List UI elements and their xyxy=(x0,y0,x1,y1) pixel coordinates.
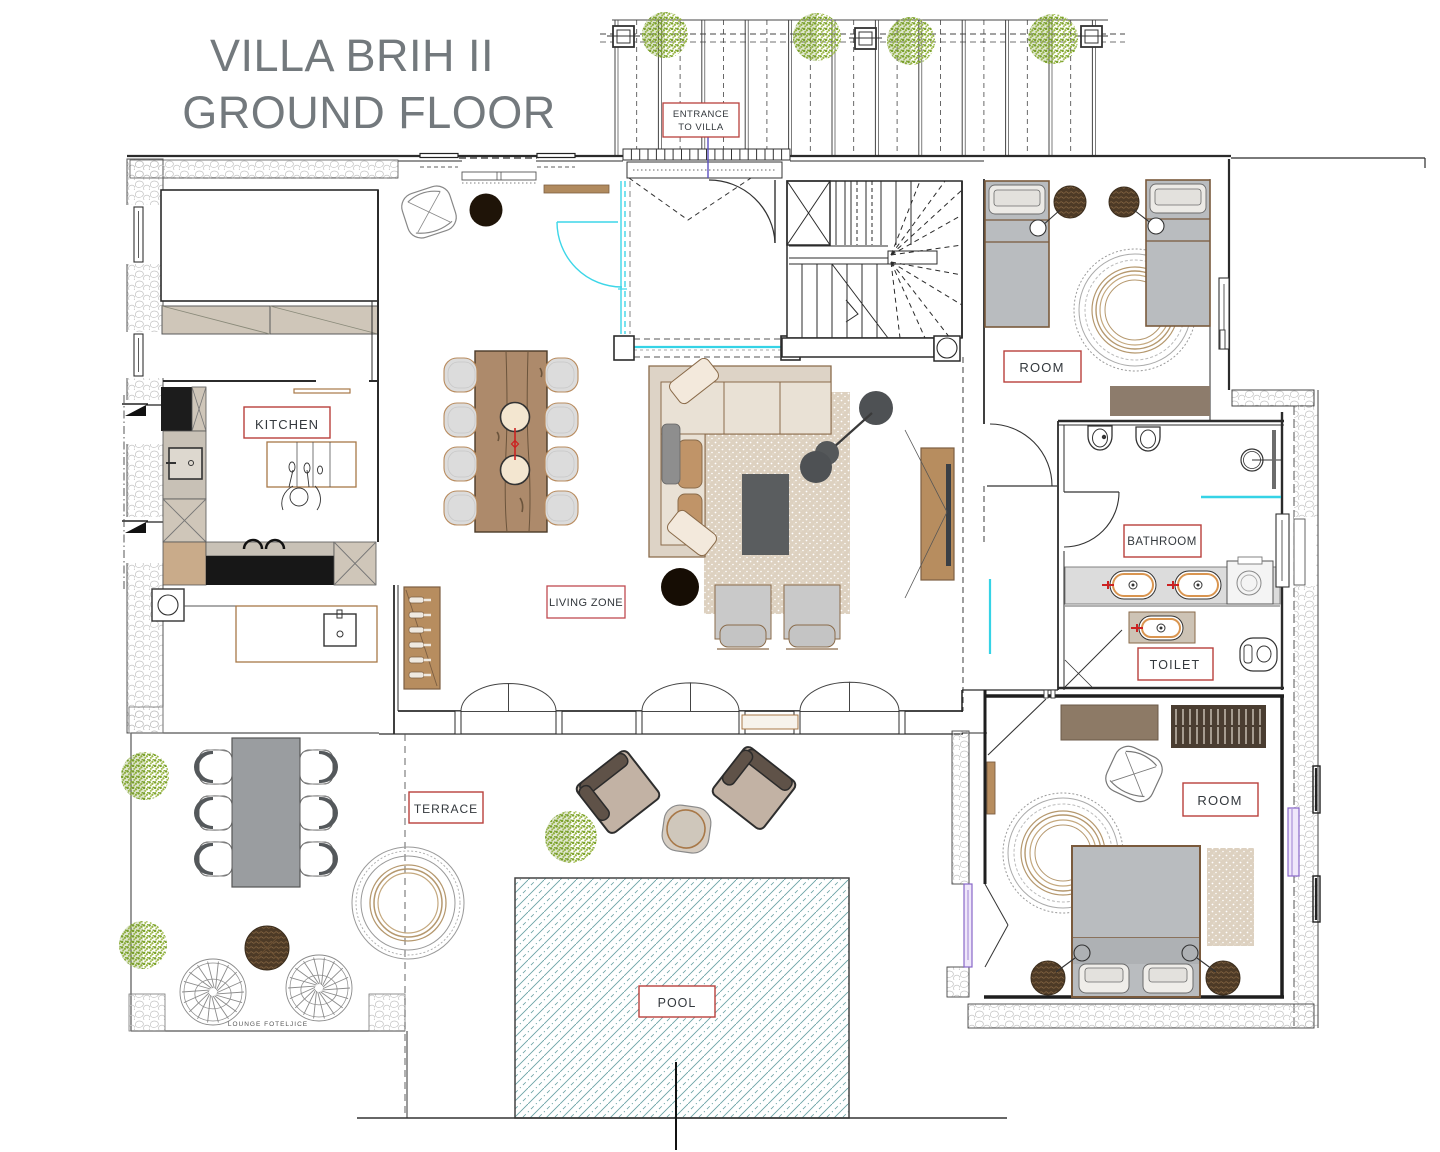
svg-text:ROOM: ROOM xyxy=(1197,793,1242,808)
svg-text:GROUND FLOOR: GROUND FLOOR xyxy=(182,87,556,138)
svg-text:ROOM: ROOM xyxy=(1019,360,1064,375)
svg-text:ENTRANCE: ENTRANCE xyxy=(673,109,729,120)
svg-text:LIVING ZONE: LIVING ZONE xyxy=(549,597,623,609)
svg-text:VILLA BRIH II: VILLA BRIH II xyxy=(210,30,494,81)
svg-text:TO VILLA: TO VILLA xyxy=(678,122,724,133)
svg-text:POOL: POOL xyxy=(658,996,697,1010)
svg-text:LOUNGE FOTELJICE: LOUNGE FOTELJICE xyxy=(228,1021,308,1028)
svg-text:KITCHEN: KITCHEN xyxy=(255,417,319,432)
svg-text:BATHROOM: BATHROOM xyxy=(1127,536,1197,548)
svg-text:TOILET: TOILET xyxy=(1150,658,1201,672)
svg-text:TERRACE: TERRACE xyxy=(414,802,478,816)
